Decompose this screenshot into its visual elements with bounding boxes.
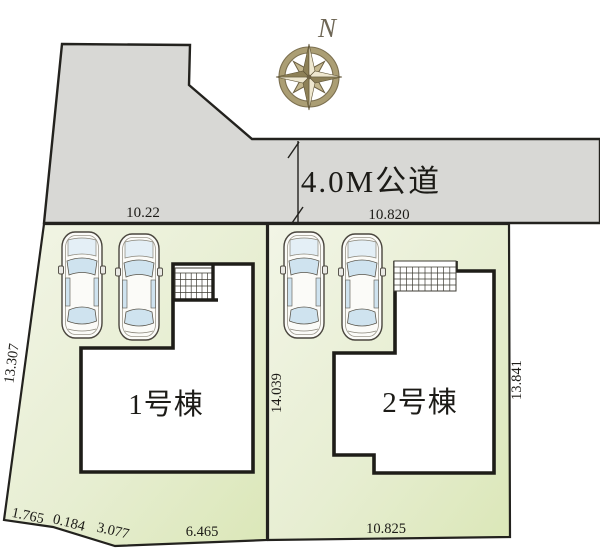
north-label: N (317, 13, 338, 43)
dim-south-segment-4: 6.465 (186, 524, 219, 540)
car-icon (116, 234, 163, 340)
building-1-label: 1号棟 (128, 388, 204, 421)
entrance-porch-1 (172, 264, 219, 301)
dim-lot1-east: 14.039 (269, 373, 285, 413)
dim-road-frontage-right: 10.820 (368, 207, 409, 223)
car-icon (281, 232, 328, 338)
road-name-label: 4.0M公道 (301, 164, 441, 199)
car-icon (59, 232, 106, 338)
dim-lot1-west: 13.307 (1, 343, 22, 385)
car-icon (339, 234, 386, 340)
compass-rose-icon: N (276, 13, 342, 110)
site-plan: N 4.0M公道 10.22 10.820 1号棟 2号棟 13.307 14.… (0, 0, 600, 558)
dim-lot2-east: 13.841 (509, 360, 525, 400)
dim-road-frontage-left: 10.22 (126, 205, 160, 221)
entrance-porch-2 (394, 261, 456, 291)
building-2-label: 2号棟 (382, 386, 458, 419)
dim-lot2-south: 10.825 (366, 521, 406, 537)
